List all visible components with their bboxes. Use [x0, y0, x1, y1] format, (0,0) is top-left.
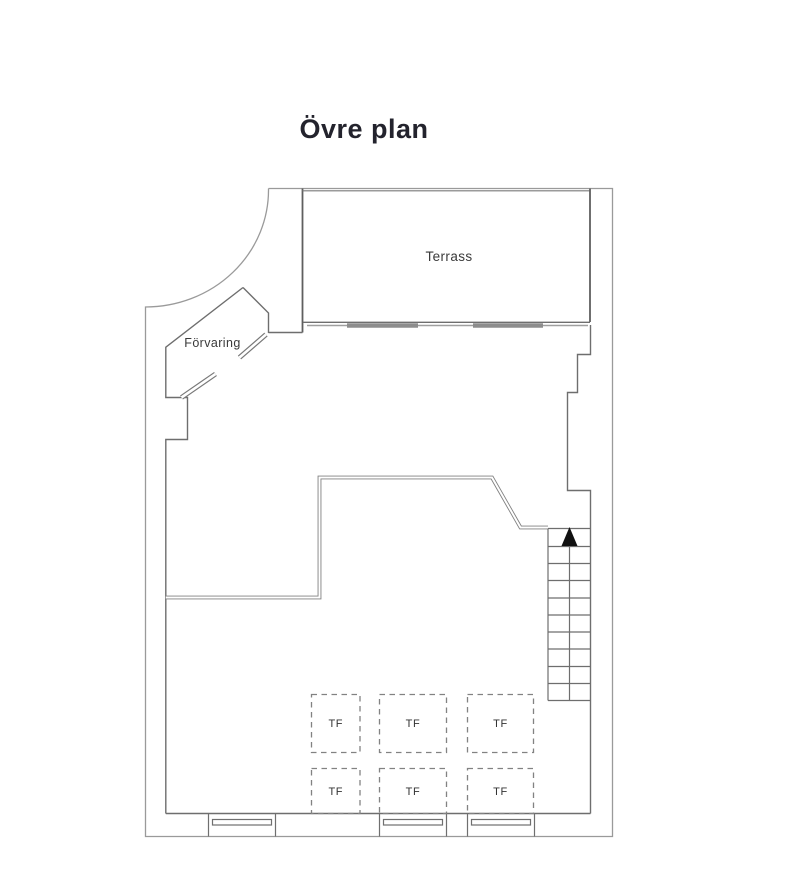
svg-text:TF: TF — [406, 718, 421, 730]
skylight-tf-1: TF — [312, 695, 361, 753]
skylight-tf-4: TF — [312, 769, 361, 814]
svg-text:TF: TF — [406, 786, 421, 798]
page-title: Övre plan — [299, 114, 428, 144]
svg-text:TF: TF — [328, 786, 343, 798]
stairs-up-arrow-icon — [562, 527, 578, 546]
window-3 — [468, 814, 535, 837]
terrace-label: Terrass — [425, 249, 472, 264]
skylight-tf-5: TF — [380, 769, 447, 814]
svg-text:TF: TF — [328, 718, 343, 730]
storage-label: Förvaring — [184, 336, 240, 350]
svg-text:TF: TF — [493, 718, 508, 730]
storage-door-leaf-left — [182, 374, 216, 398]
floor-plan-canvas: Övre plan Terrass Förvaring — [0, 0, 799, 877]
storage-room: Förvaring — [166, 288, 303, 814]
right-interior-wall — [568, 325, 591, 814]
skylight-tf-6: TF — [468, 769, 534, 814]
storage-door-leaf-right — [240, 335, 267, 358]
left-interior-wall — [166, 288, 243, 814]
floor-plan-page: Övre plan Terrass Förvaring — [0, 0, 799, 877]
staircase — [548, 527, 591, 701]
storage-right-wall — [243, 288, 269, 334]
terrace-room: Terrass — [303, 189, 591, 333]
stairwell-railing — [166, 478, 548, 598]
skylight-tf-2: TF — [380, 695, 447, 753]
window-1 — [209, 814, 276, 837]
svg-text:TF: TF — [493, 786, 508, 798]
skylight-tf-3: TF — [468, 695, 534, 753]
window-2 — [380, 814, 447, 837]
